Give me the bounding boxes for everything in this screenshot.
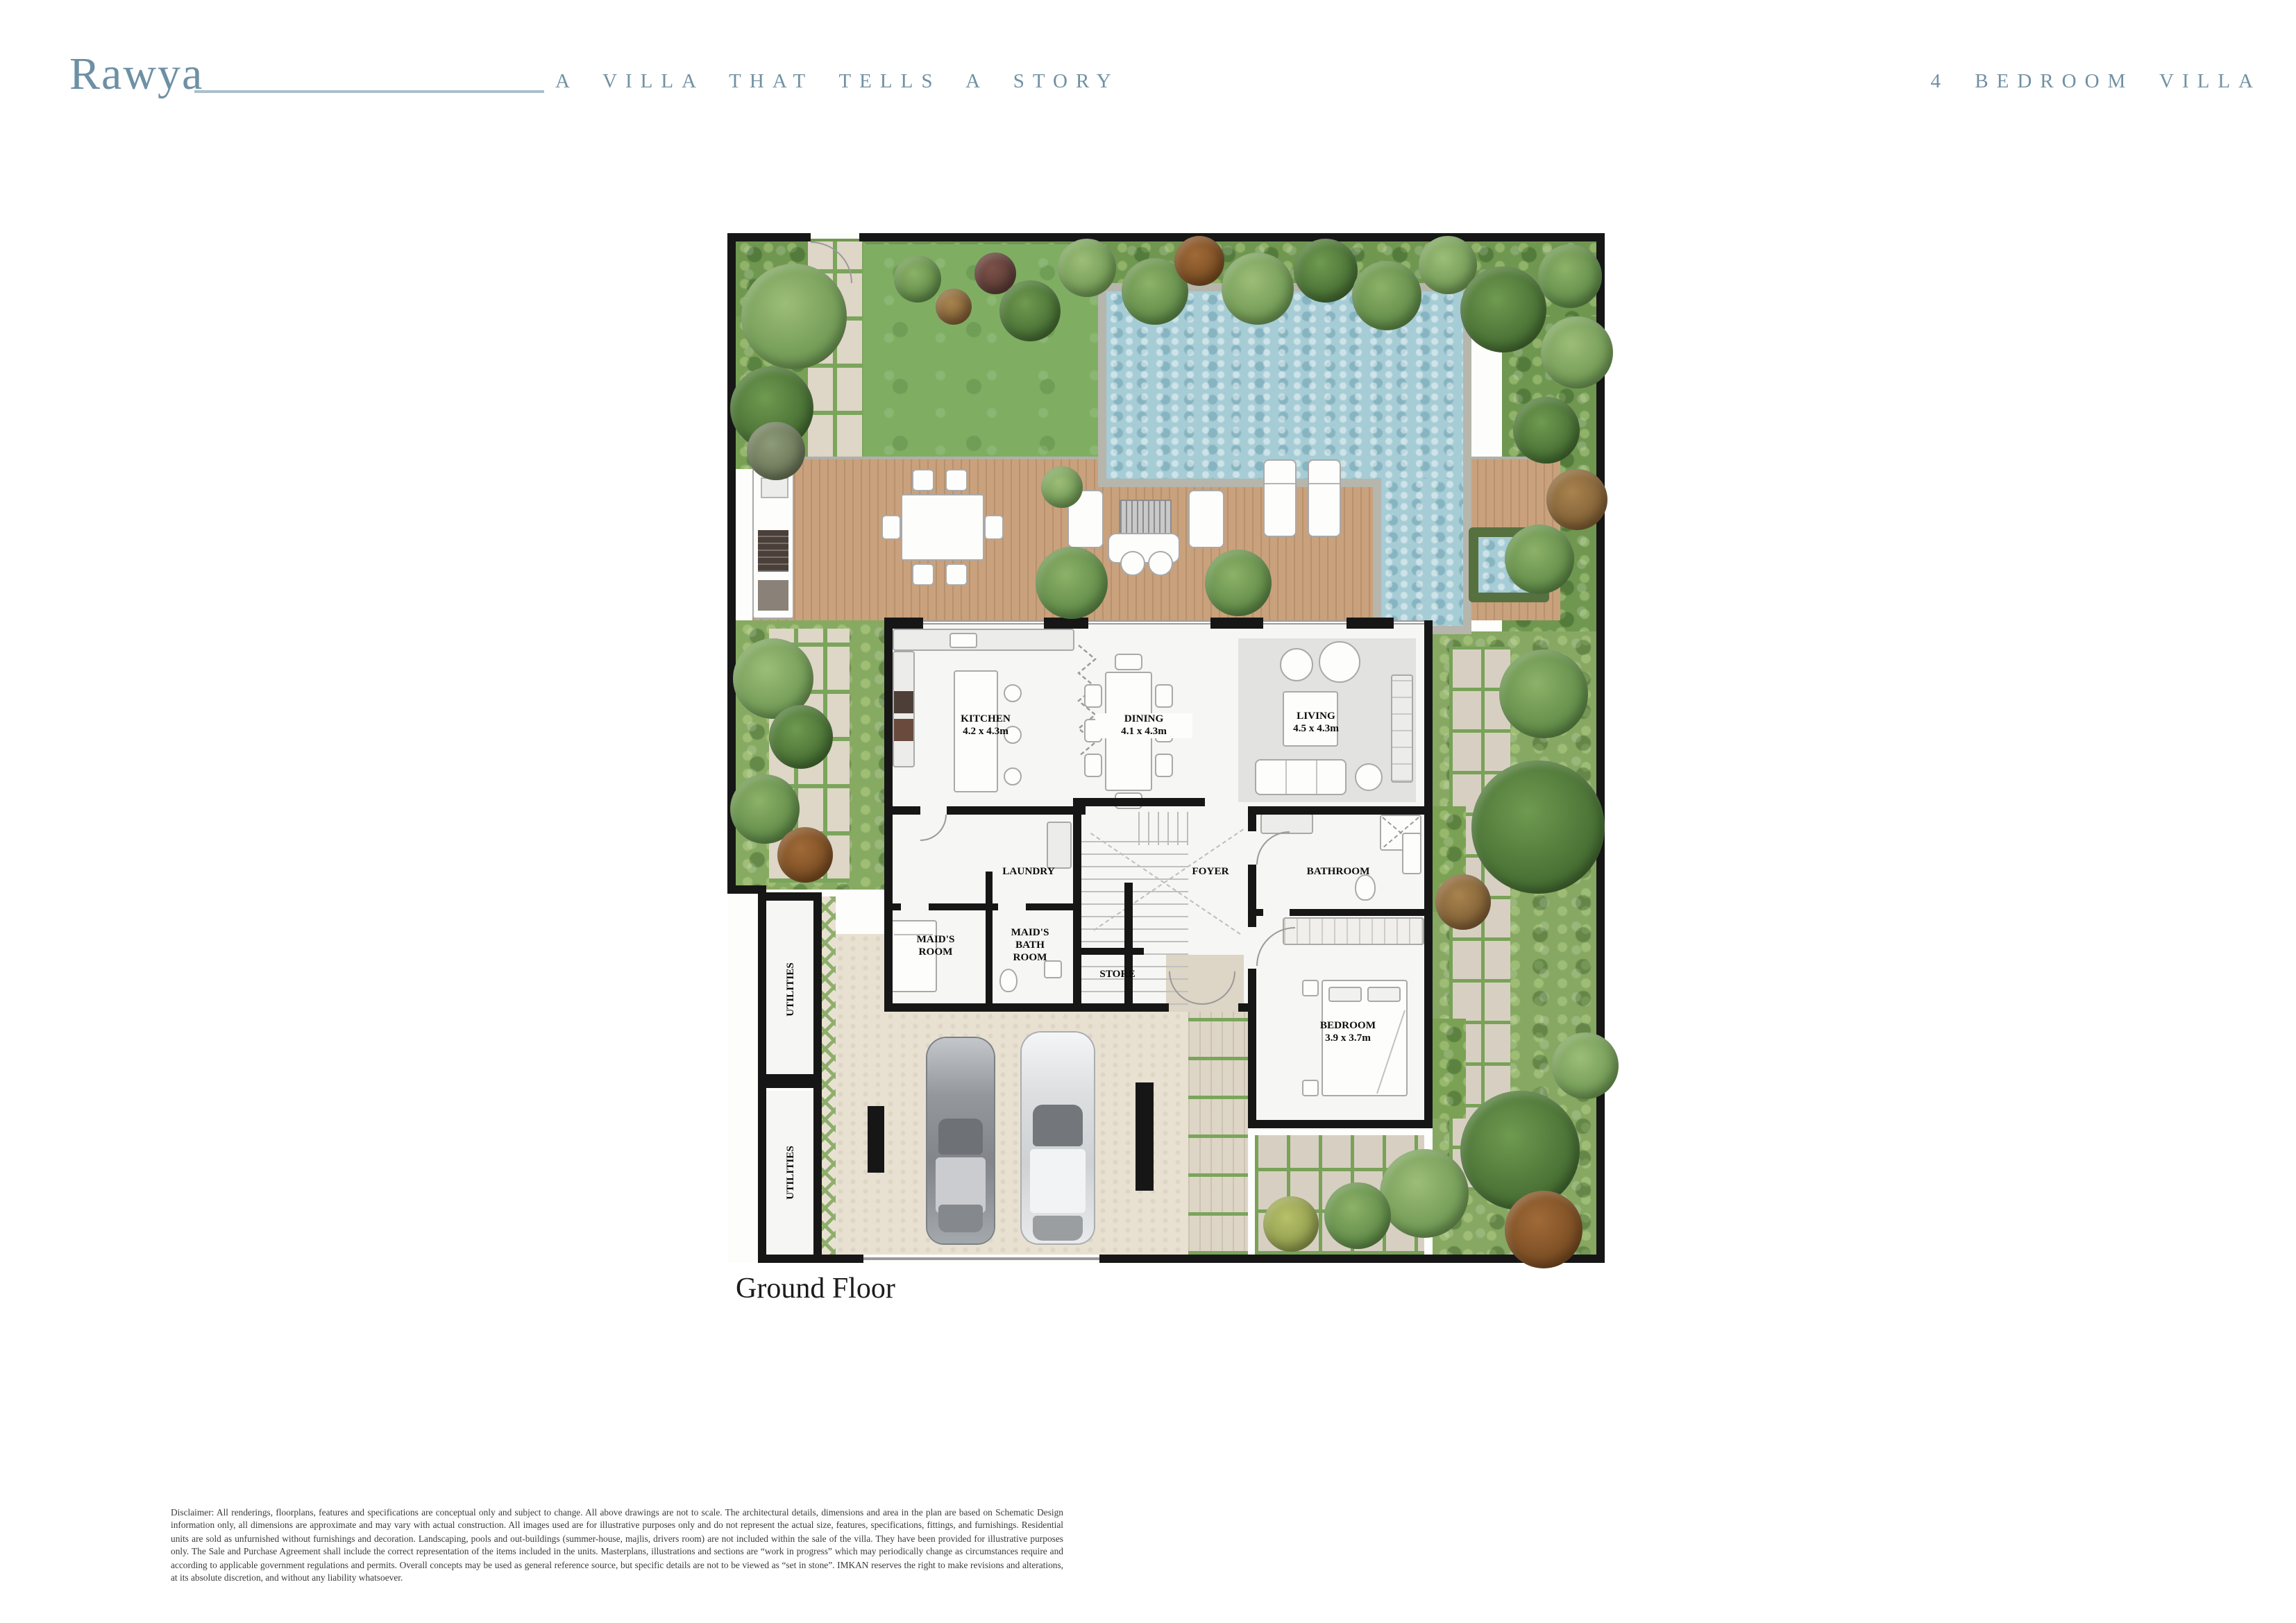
wall xyxy=(859,233,1605,241)
wall xyxy=(1248,806,1256,831)
pillow xyxy=(1367,987,1401,1002)
tree xyxy=(1058,239,1116,297)
dining-chair xyxy=(1084,684,1102,708)
lounger-fold-line xyxy=(1309,483,1340,484)
room-name: DINING xyxy=(1124,712,1164,724)
tree xyxy=(769,705,833,769)
shrub xyxy=(1546,469,1607,530)
dining-chair xyxy=(1155,754,1173,777)
car-white-rear-window xyxy=(1033,1216,1083,1241)
wall xyxy=(986,872,993,1010)
room-label-living: LIVING 4.5 x 4.3m xyxy=(1267,711,1365,736)
wall xyxy=(727,233,811,241)
outdoor-sink xyxy=(761,477,788,498)
sun-lounger xyxy=(1308,459,1341,537)
floor-plan: KITCHEN 4.2 x 4.3m DINING 4.1 x 4.3m LIV… xyxy=(727,233,1605,1263)
deck-shrub xyxy=(1205,550,1272,616)
patio-chair xyxy=(945,563,968,586)
tree xyxy=(1460,1091,1580,1210)
wall xyxy=(1596,233,1605,1263)
wall xyxy=(1248,1120,1433,1128)
room-label-store: STORE xyxy=(1087,969,1148,981)
coffee-machine xyxy=(894,719,913,741)
wall xyxy=(1073,1003,1169,1012)
tree xyxy=(1541,316,1613,389)
vanity xyxy=(1402,833,1421,874)
disclaimer-text: Disclaimer: All renderings, floorplans, … xyxy=(171,1507,1063,1586)
shrub xyxy=(1435,874,1491,930)
tv-unit xyxy=(1391,674,1413,783)
oven xyxy=(894,691,913,713)
brochure-page: Rawya A VILLA THAT TELLS A STORY 4 BEDRO… xyxy=(0,0,2296,1623)
wall xyxy=(1252,909,1263,916)
shrub xyxy=(894,255,941,303)
wall xyxy=(1073,806,1081,1010)
shrub xyxy=(777,827,833,883)
room-label-bedroom: BEDROOM 3.9 x 3.7m xyxy=(1299,1020,1396,1045)
shrub xyxy=(747,422,805,480)
wall xyxy=(1290,909,1433,916)
wall xyxy=(1073,798,1205,806)
wall xyxy=(758,892,822,901)
wardrobe xyxy=(1283,917,1424,945)
tree xyxy=(741,264,847,369)
room-name: BEDROOM xyxy=(1320,1019,1376,1031)
tree xyxy=(1380,1149,1469,1238)
brand-logo: Rawya xyxy=(69,50,203,101)
wall-stub xyxy=(1136,1082,1154,1191)
room-name: LAUNDRY xyxy=(1002,865,1054,877)
room-dims: 4.1 x 4.3m xyxy=(1121,724,1167,737)
room-label-bathroom: BATHROOM xyxy=(1285,866,1391,878)
lounge-sofa xyxy=(1188,490,1224,548)
shrub xyxy=(936,289,972,325)
patio-chair xyxy=(945,469,968,491)
planter-pocket xyxy=(1433,1019,1466,1119)
tree xyxy=(1538,244,1602,308)
tagline: A VILLA THAT TELLS A STORY xyxy=(555,71,1120,94)
maids-bath-toilet xyxy=(999,969,1018,992)
wall xyxy=(1424,620,1433,1128)
room-label-maids-bath: MAID'S BATH ROOM xyxy=(1002,927,1058,965)
stool xyxy=(1004,684,1022,702)
tree xyxy=(1352,261,1421,330)
room-name: FOYER xyxy=(1192,865,1229,877)
room-name: MAID'S ROOM xyxy=(917,933,955,958)
tree xyxy=(1294,239,1358,303)
car-gray-rear-window xyxy=(938,1205,983,1232)
tree xyxy=(1222,253,1294,325)
tree xyxy=(1499,649,1588,738)
patio-table xyxy=(901,494,984,561)
room-name: BATHROOM xyxy=(1307,865,1370,877)
dining-chair xyxy=(1115,654,1142,670)
sun-lounger xyxy=(1263,459,1297,537)
palm-tree xyxy=(1460,266,1546,352)
room-label-utilities-2: UTILITIES xyxy=(784,1146,796,1200)
patio-chair xyxy=(912,469,934,491)
sofa xyxy=(1255,759,1347,795)
wall-post xyxy=(1044,618,1088,629)
wall xyxy=(758,1255,863,1263)
room-label-laundry: LAUNDRY xyxy=(987,866,1070,878)
wall xyxy=(758,1074,822,1088)
room-dims: 3.9 x 3.7m xyxy=(1325,1031,1371,1044)
wall-post xyxy=(1210,618,1263,629)
driveway-gate xyxy=(863,1257,1099,1260)
pouf xyxy=(1280,648,1313,681)
unit-type: 4 BEDROOM VILLA xyxy=(1931,71,2261,94)
laundry-unit xyxy=(1047,822,1072,869)
stair-rails xyxy=(1138,812,1188,845)
lounger-fold-line xyxy=(1265,483,1295,484)
wall xyxy=(947,806,1086,815)
header-divider-line xyxy=(194,90,544,92)
patio-chair xyxy=(984,515,1004,540)
room-label-maids-room: MAID'S ROOM xyxy=(906,934,965,959)
tree xyxy=(1552,1033,1619,1099)
wall xyxy=(1248,969,1256,1128)
room-label-utilities-1: UTILITIES xyxy=(784,962,796,1017)
car-white-windshield xyxy=(1033,1105,1083,1146)
bbq-grill xyxy=(758,530,788,572)
side-table xyxy=(1355,763,1383,791)
deck-shrub xyxy=(1041,466,1083,508)
car-white-roof xyxy=(1030,1149,1086,1213)
room-label-foyer: FOYER xyxy=(1169,866,1252,878)
room-label-kitchen: KITCHEN 4.2 x 4.3m xyxy=(937,713,1034,738)
deck-shrub xyxy=(1036,547,1108,619)
room-name: LIVING xyxy=(1297,709,1335,722)
nightstand xyxy=(1302,1080,1319,1096)
wall xyxy=(1077,948,1144,955)
kitchen-sink xyxy=(949,633,977,648)
grass-tuft xyxy=(1263,1196,1319,1252)
room-name: KITCHEN xyxy=(961,712,1011,724)
entry-walk xyxy=(1188,1003,1248,1255)
patio-chair xyxy=(912,563,934,586)
patio-chair xyxy=(881,515,901,540)
wall xyxy=(884,620,893,1012)
kitchen-counter xyxy=(893,629,1074,651)
stool xyxy=(1004,767,1022,785)
wall xyxy=(1124,883,1133,1005)
shrub xyxy=(1505,1191,1582,1268)
wall-stub xyxy=(868,1106,884,1173)
tree xyxy=(1513,397,1580,464)
plan-title: Ground Floor xyxy=(736,1271,895,1306)
car-gray-windshield xyxy=(938,1119,983,1155)
palm-tree xyxy=(999,280,1061,341)
outdoor-cabinet xyxy=(758,580,788,611)
wall-post xyxy=(884,618,923,629)
pouf xyxy=(1120,551,1145,576)
wall xyxy=(1252,806,1433,815)
wall xyxy=(1026,903,1073,910)
pillow xyxy=(1328,987,1362,1002)
wall xyxy=(884,903,901,910)
shrub xyxy=(1174,236,1224,286)
tree xyxy=(1324,1182,1391,1249)
wall xyxy=(884,1003,1079,1012)
pouf xyxy=(1148,551,1173,576)
swivel-chair xyxy=(1319,641,1360,683)
room-dims: 4.5 x 4.3m xyxy=(1293,722,1339,734)
dining-chair xyxy=(1155,684,1173,708)
room-dims: 4.2 x 4.3m xyxy=(963,724,1008,737)
room-name: MAID'S BATH ROOM xyxy=(1011,926,1049,963)
swimming-pool-arm xyxy=(1381,479,1463,626)
dining-chair xyxy=(1084,754,1102,777)
wall xyxy=(884,806,920,815)
nightstand xyxy=(1302,980,1319,996)
room-label-dining: DINING 4.1 x 4.3m xyxy=(1095,713,1192,738)
wall-post xyxy=(1347,618,1394,629)
large-tree xyxy=(1471,760,1605,894)
room-name: STORE xyxy=(1099,967,1135,980)
tree xyxy=(1505,525,1574,594)
